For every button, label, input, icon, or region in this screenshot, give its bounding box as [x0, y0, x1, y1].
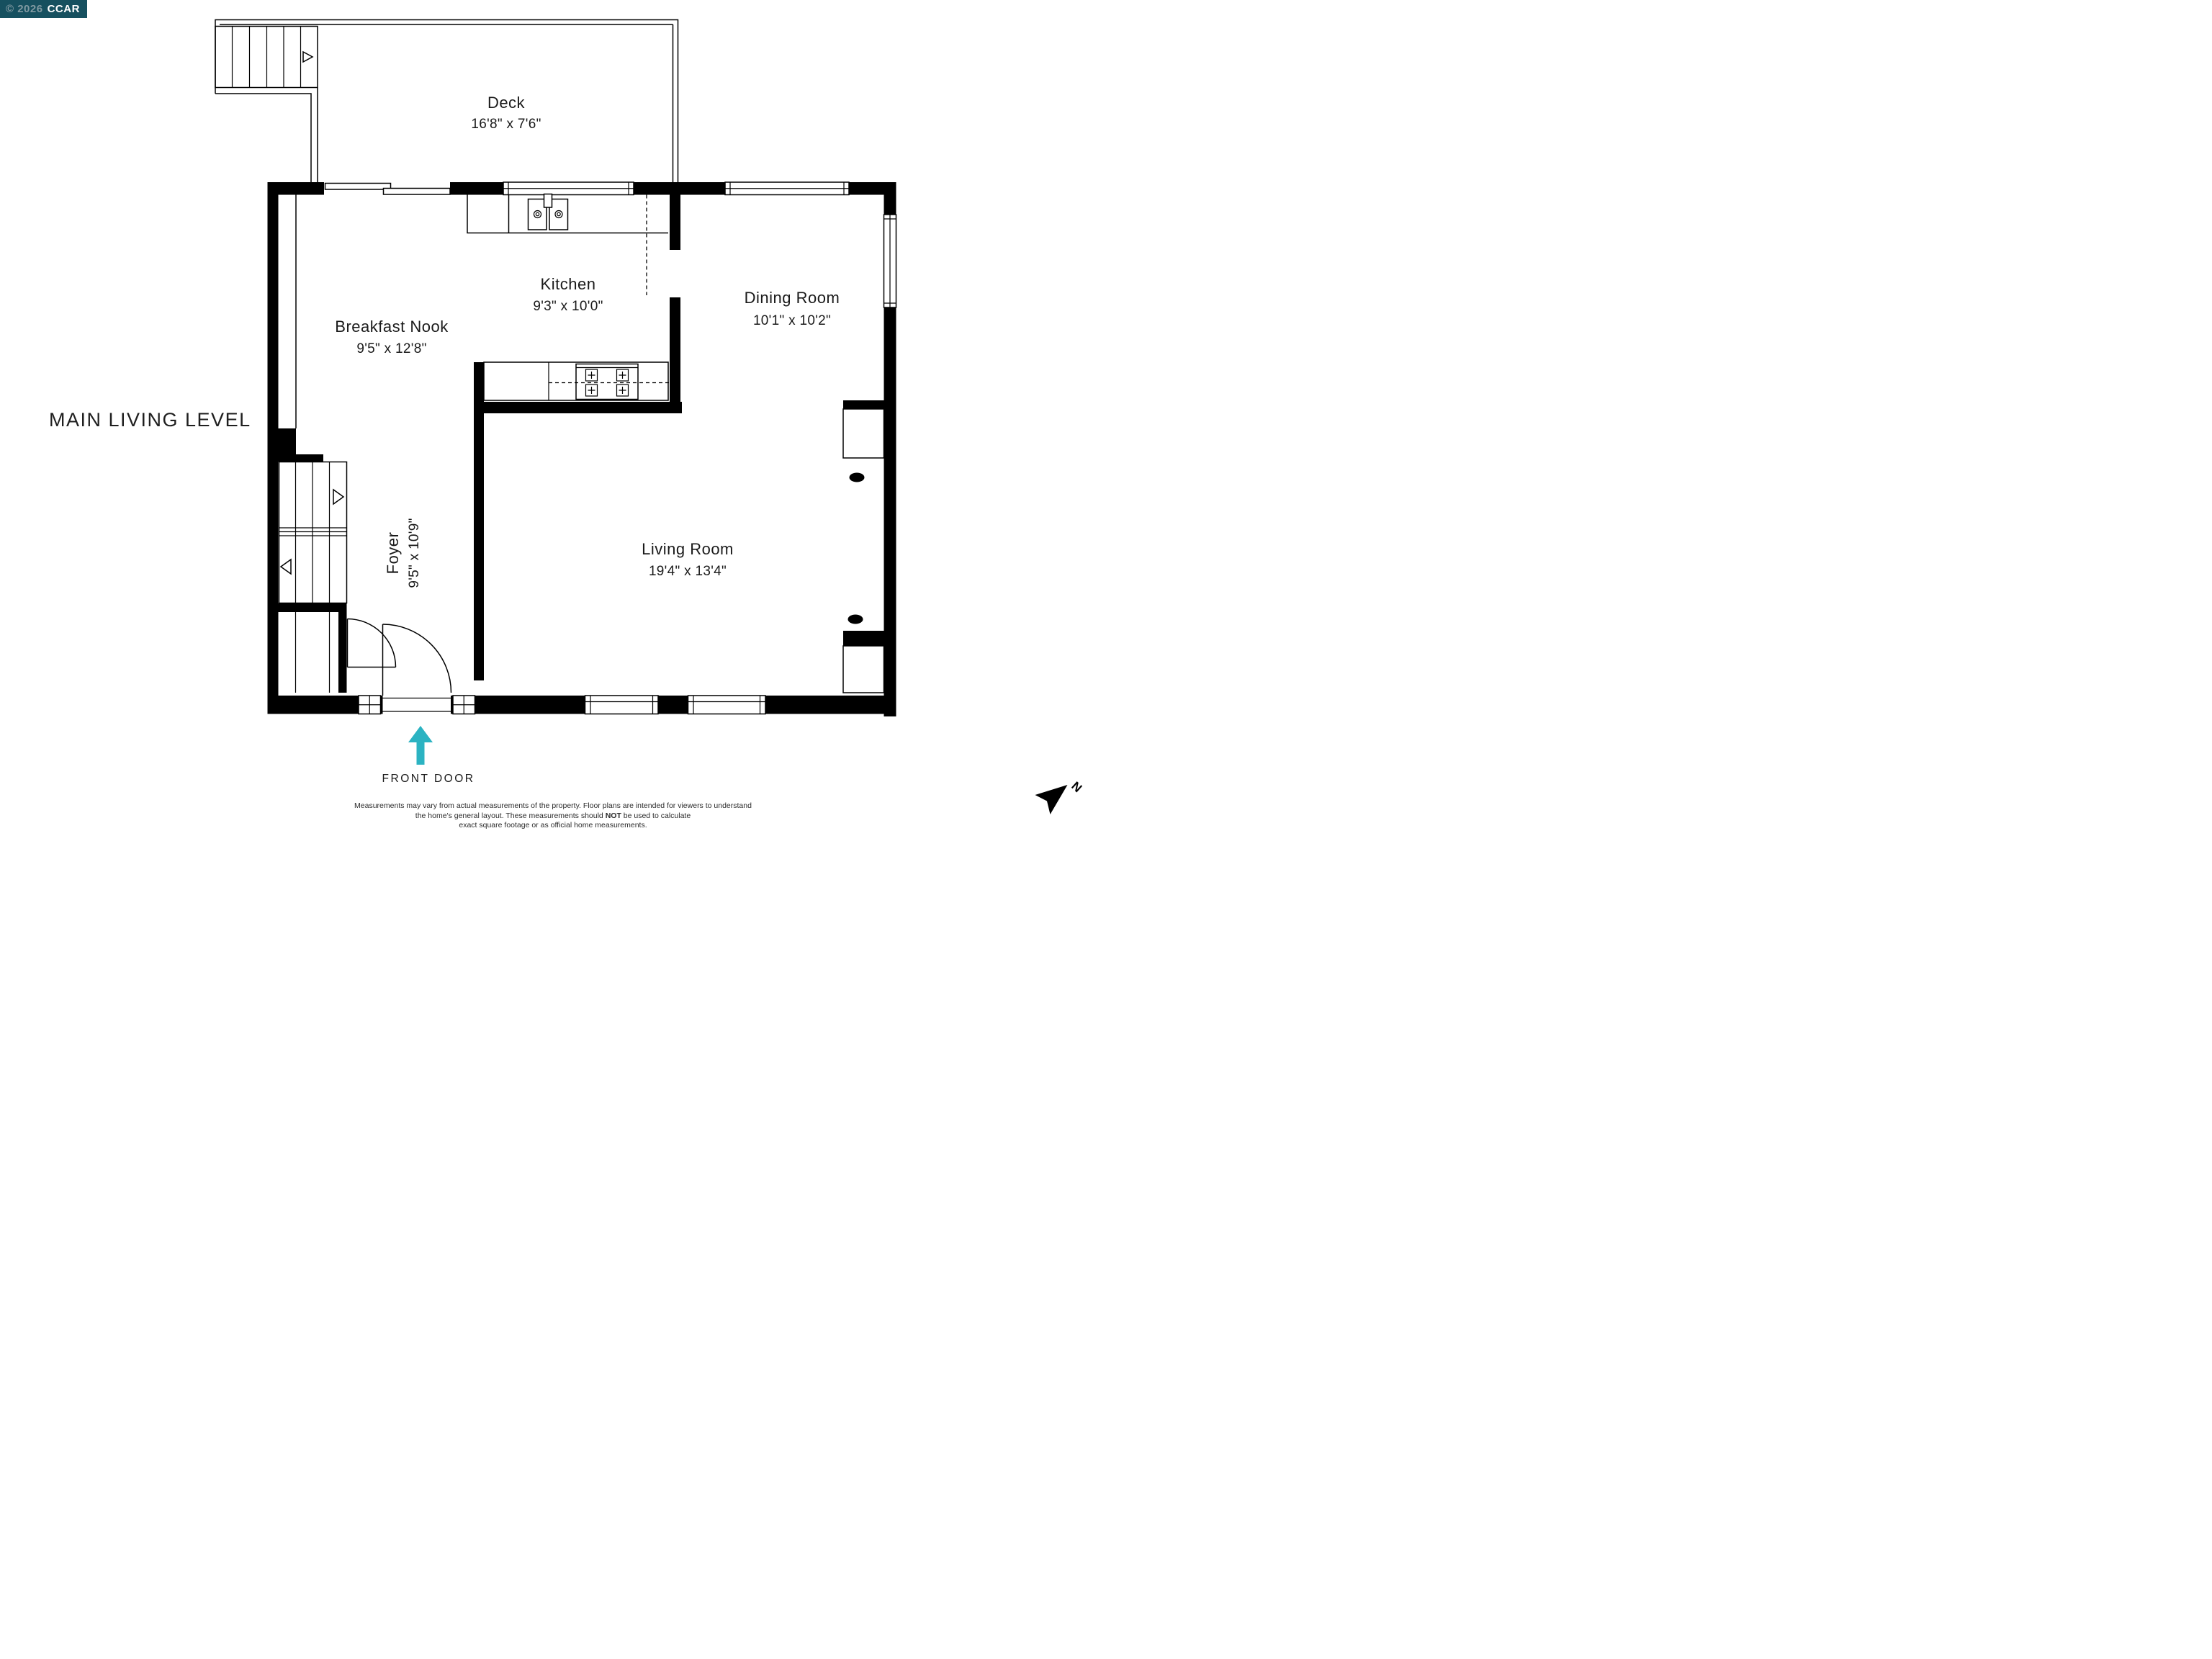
wall-under-stairs — [279, 603, 347, 613]
badge-copyright: © 2026 — [6, 3, 43, 15]
dining-window-top — [725, 182, 849, 195]
disclaimer-line1: Measurements may vary from actual measur… — [0, 801, 1106, 811]
front-door — [383, 624, 451, 714]
kitchen-sink-icon — [529, 194, 568, 230]
north-letter: N — [1069, 779, 1084, 795]
alcove-stub — [843, 631, 884, 646]
front-door-arrow-icon — [408, 726, 433, 765]
living-window-2 — [688, 696, 766, 714]
copyright-badge: © 2026 CCAR — [0, 0, 87, 18]
wall-jog — [279, 454, 324, 462]
floorplan-drawing: Deck 16'8" x 7'6" Kitchen 9'3" x 10'0" B… — [0, 0, 1106, 829]
deck-label: Deck — [487, 94, 526, 112]
wall-segment — [450, 182, 503, 195]
deck-outline — [215, 20, 678, 183]
wall-segment — [884, 307, 896, 716]
wall-segment — [475, 696, 585, 714]
wall-segment — [658, 696, 688, 714]
foyer-label: Foyer — [384, 532, 402, 575]
kitchen-dining-wall-upper — [670, 192, 680, 250]
closet-wall — [338, 607, 347, 693]
stairs-down-arrow-icon — [281, 559, 291, 574]
foyer-dims: 9'5" x 10'9" — [407, 518, 422, 588]
sliding-door-panel — [384, 189, 451, 195]
wall-niche-end — [279, 428, 297, 454]
living-label: Living Room — [642, 540, 734, 558]
deck-dims: 16'8" x 7'6" — [471, 117, 541, 132]
dining-window-right — [884, 215, 896, 307]
sliding-door — [324, 182, 450, 195]
sidelight-right — [453, 696, 475, 714]
kitchen-living-wall — [474, 402, 682, 413]
front-door-annotation: FRONT DOOR — [382, 726, 475, 785]
wall-segment — [884, 182, 896, 215]
closet-panel-lines — [296, 612, 330, 693]
sliding-door-panel — [325, 184, 391, 190]
disclaimer-line2: the home's general layout. These measure… — [0, 811, 1106, 822]
kitchen-fixtures — [467, 194, 670, 401]
disclaimer-line3: exact square footage or as official home… — [0, 821, 1106, 829]
floorplan-page: Deck 16'8" x 7'6" Kitchen 9'3" x 10'0" B… — [0, 0, 1106, 829]
interior-walls — [279, 192, 884, 693]
disclaimer: Measurements may vary from actual measur… — [0, 801, 1106, 829]
living-dims: 19'4" x 13'4" — [649, 564, 727, 579]
wall-segment — [765, 696, 896, 714]
dining-dims: 10'1" x 10'2" — [753, 313, 831, 328]
foyer-stairs — [279, 462, 347, 603]
alcove-stub — [843, 400, 884, 409]
nook-dims: 9'5" x 12'8" — [356, 341, 426, 356]
stairs-up-arrow-icon — [333, 490, 343, 504]
deck-stairs-treads — [233, 27, 301, 88]
windows — [324, 182, 896, 714]
wall-segment — [268, 696, 359, 714]
disclaimer-line2-bold: NOT — [606, 811, 621, 820]
living-alcove — [843, 409, 884, 693]
alcove-cabinet-top — [843, 409, 884, 458]
page-title: MAIN LIVING LEVEL — [49, 409, 251, 431]
kitchen-label: Kitchen — [541, 275, 596, 293]
post-dot — [848, 615, 863, 624]
room-labels: Deck 16'8" x 7'6" Kitchen 9'3" x 10'0" B… — [335, 94, 840, 588]
deck-stairs-direction-arrow-icon — [303, 52, 313, 62]
dining-label: Dining Room — [745, 289, 840, 307]
closet-door-swing-arc — [348, 619, 396, 667]
kitchen-window — [503, 182, 634, 195]
stove-icon — [576, 364, 638, 400]
kitchen-dims: 9'3" x 10'0" — [533, 299, 603, 314]
nook-label: Breakfast Nook — [335, 318, 449, 336]
living-window-1 — [585, 696, 659, 714]
badge-brand: CCAR — [48, 3, 80, 15]
sidelight-left — [359, 696, 381, 714]
post-dot — [850, 473, 865, 482]
alcove-cabinet-bottom — [843, 646, 884, 693]
kitchen-dining-wall-lower — [670, 297, 680, 413]
disclaimer-line2-post: be used to calculate — [621, 811, 691, 820]
disclaimer-line2-pre: the home's general layout. These measure… — [415, 811, 606, 820]
front-door-swing-arc — [383, 624, 451, 693]
wall-segment — [268, 182, 279, 714]
front-door-label: FRONT DOOR — [382, 773, 475, 785]
deck-railing-outer — [215, 20, 678, 183]
exterior-walls — [268, 182, 896, 716]
